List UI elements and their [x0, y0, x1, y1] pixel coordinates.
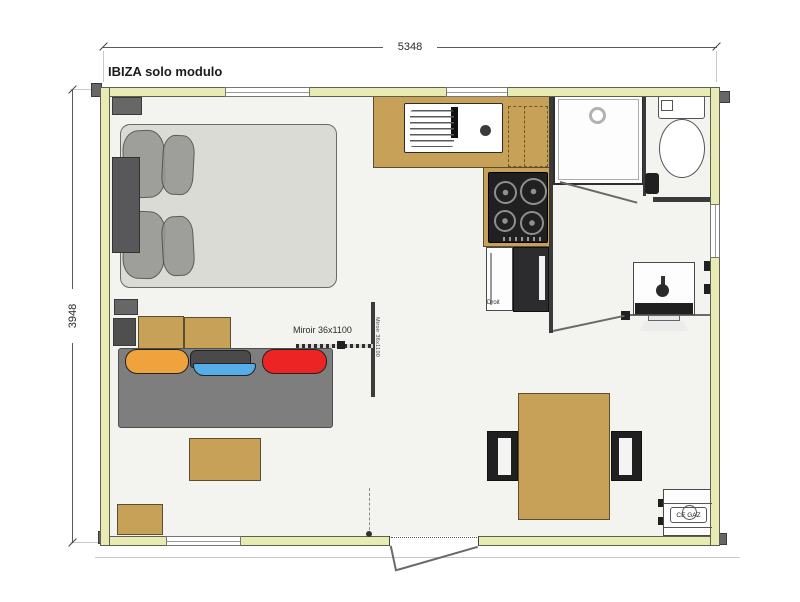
wall-left: [100, 87, 110, 546]
toilet-bowl: [659, 119, 705, 178]
entry-door-leaf: [390, 546, 397, 572]
partition-kitchen-bathroom: [549, 92, 553, 333]
wardrobe-2: [184, 317, 231, 350]
tv-band: [635, 303, 693, 314]
axis-centerline: [369, 488, 370, 535]
mirror-label-vertical: Miroir 36x1100: [374, 317, 380, 383]
bed-headboard: [112, 157, 140, 253]
window-right: [710, 204, 720, 258]
entry-door-opening: [389, 536, 479, 546]
extension-line: [103, 51, 104, 82]
gas-box-hinge: [658, 499, 663, 507]
partition-bathroom-south: [653, 197, 710, 202]
hob-knobs: [503, 237, 545, 241]
ground-line: [95, 557, 740, 558]
gas-box-seal: [682, 505, 697, 520]
burner: [520, 178, 547, 205]
nightstand-top: [112, 97, 142, 115]
shower-drain: [589, 107, 606, 124]
window-bottom: [166, 536, 241, 546]
sink-drainboard: [410, 110, 454, 147]
sink-drain: [480, 125, 491, 136]
side-unit: [113, 318, 136, 346]
overhead-cabinet-divider: [524, 106, 525, 167]
gas-box-hinge: [658, 517, 663, 525]
nightstand-bottom: [114, 299, 138, 315]
gas-box-line: [664, 503, 712, 504]
floor-plan: IBIZA solo modulo 5348 3948: [0, 0, 800, 602]
shower-door-handle: [645, 173, 659, 194]
chair-right-seat: [619, 438, 632, 475]
dimension-height-label: 3948: [66, 289, 80, 343]
cushion-orange: [125, 349, 189, 374]
coffee-table: [189, 438, 261, 481]
burner: [494, 181, 517, 204]
gas-box-line: [664, 527, 712, 528]
mirror-wall: [296, 344, 373, 348]
overhead-cabinet-dashed: [508, 106, 548, 167]
corner-jack: [719, 91, 730, 103]
dining-table: [518, 393, 610, 520]
wall-right: [710, 87, 720, 546]
window-top-kitchen: [446, 87, 508, 97]
storage-box: [117, 504, 163, 535]
door-hinge-label: Droit: [487, 300, 500, 306]
pillow-2: [160, 134, 195, 196]
burner: [494, 210, 516, 232]
tv-mount-knob: [656, 284, 669, 297]
chair-left-seat: [498, 438, 511, 475]
entry-door-leaf: [397, 546, 478, 571]
tv-stand-base: [640, 321, 688, 331]
plan-title: IBIZA solo modulo: [108, 64, 222, 79]
cushion-red: [262, 349, 327, 374]
burner: [520, 211, 544, 235]
window-top-bedroom: [225, 87, 310, 97]
fridge-handle: [539, 256, 545, 300]
cushion-blue: [193, 363, 256, 376]
extension-line: [70, 542, 100, 543]
pillow-4: [160, 215, 195, 277]
dimension-width-label: 5348: [383, 40, 437, 54]
mirror-label: Miroir 36x1100: [293, 325, 352, 335]
toilet-flush: [661, 100, 673, 111]
wall-top: [100, 87, 720, 97]
wardrobe-1: [138, 316, 184, 349]
tv-stand-neck: [648, 315, 680, 321]
extension-line: [716, 51, 717, 82]
cabinet-handle: [490, 253, 492, 305]
axis-node: [366, 531, 372, 537]
wall-node: [337, 341, 345, 349]
